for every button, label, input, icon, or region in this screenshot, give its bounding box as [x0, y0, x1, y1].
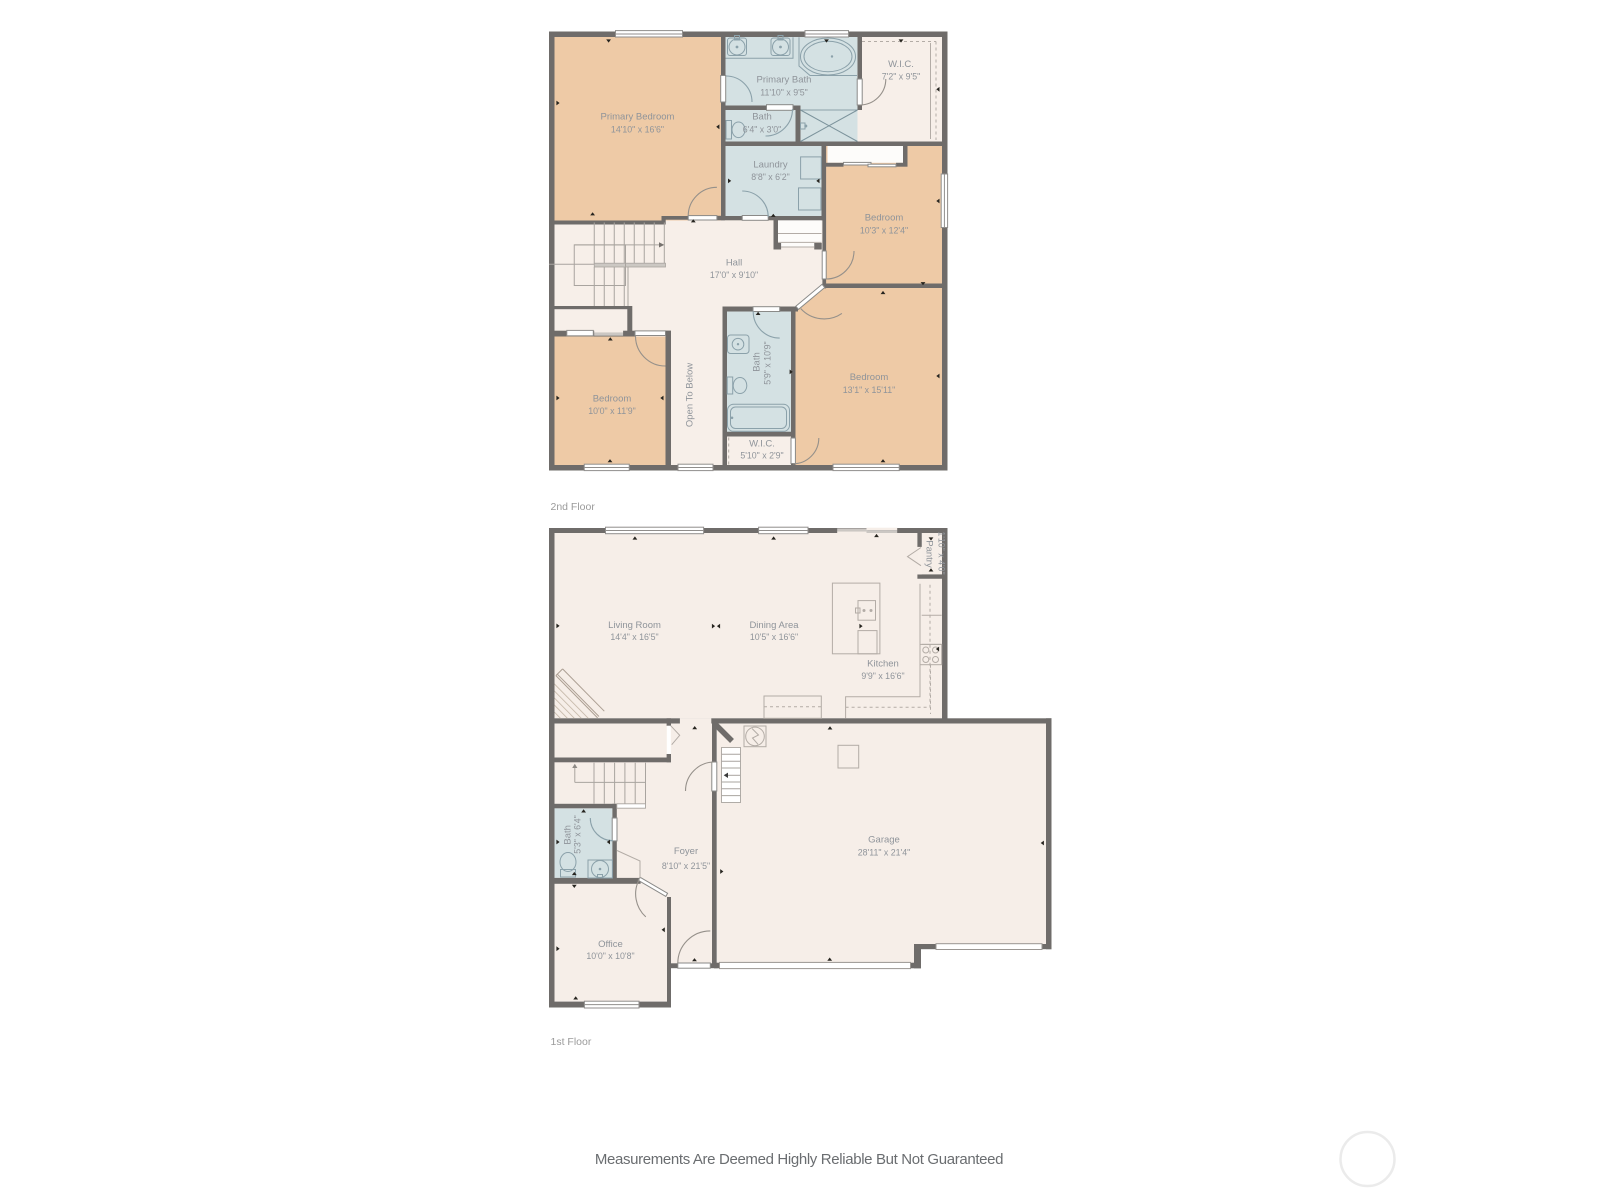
svg-text:Primary Bedroom: Primary Bedroom	[601, 112, 675, 123]
svg-text:Pantry: Pantry	[924, 540, 935, 568]
svg-text:Bedroom: Bedroom	[593, 394, 632, 405]
svg-text:Bath: Bath	[752, 352, 763, 372]
svg-text:8'8" x 6'2": 8'8" x 6'2"	[751, 172, 789, 182]
svg-text:1'10" x 4'0": 1'10" x 4'0"	[937, 531, 947, 574]
svg-text:Dining Area: Dining Area	[749, 620, 799, 631]
svg-text:Laundry: Laundry	[753, 160, 788, 171]
svg-text:Office: Office	[598, 939, 623, 950]
svg-text:W.I.C.: W.I.C.	[749, 439, 775, 450]
svg-text:14'10" x 16'6": 14'10" x 16'6"	[611, 124, 664, 134]
svg-text:6'4" x 3'0": 6'4" x 3'0"	[743, 125, 781, 135]
svg-text:Hall: Hall	[726, 258, 742, 269]
svg-text:Measurements Are Deemed Highly: Measurements Are Deemed Highly Reliable …	[595, 1151, 1003, 1168]
svg-text:10'0" x 11'9": 10'0" x 11'9"	[588, 406, 636, 416]
svg-text:10'0" x 10'8": 10'0" x 10'8"	[586, 951, 634, 961]
svg-text:11'10" x 9'5": 11'10" x 9'5"	[760, 87, 808, 97]
svg-text:Garage: Garage	[868, 835, 900, 846]
svg-text:7'2" x 9'5": 7'2" x 9'5"	[882, 72, 920, 82]
svg-text:Kitchen: Kitchen	[867, 659, 899, 670]
svg-text:17'0" x 9'10": 17'0" x 9'10"	[710, 270, 758, 280]
svg-text:14'4" x 16'5": 14'4" x 16'5"	[610, 632, 658, 642]
svg-text:5'9" x 10'9": 5'9" x 10'9"	[763, 341, 773, 384]
svg-text:Primary Bath: Primary Bath	[757, 75, 812, 86]
svg-text:W.I.C.: W.I.C.	[888, 59, 914, 70]
svg-text:5'3" x 6'4": 5'3" x 6'4"	[573, 815, 583, 853]
svg-text:Foyer: Foyer	[674, 846, 698, 857]
svg-text:8'10" x 21'5": 8'10" x 21'5"	[662, 861, 710, 871]
svg-text:28'11" x 21'4": 28'11" x 21'4"	[858, 847, 911, 857]
svg-text:13'1" x 15'11": 13'1" x 15'11"	[843, 385, 896, 395]
svg-text:Bedroom: Bedroom	[865, 213, 904, 224]
svg-text:Bath: Bath	[752, 112, 772, 123]
svg-text:Open To Below: Open To Below	[685, 363, 696, 427]
svg-text:10'3" x 12'4": 10'3" x 12'4"	[860, 225, 908, 235]
svg-text:1st Floor: 1st Floor	[551, 1036, 592, 1048]
svg-text:2nd Floor: 2nd Floor	[551, 501, 596, 513]
svg-text:Bedroom: Bedroom	[850, 372, 889, 383]
svg-text:9'9" x 16'6": 9'9" x 16'6"	[861, 671, 904, 681]
svg-text:10'5" x 16'6": 10'5" x 16'6"	[750, 632, 798, 642]
svg-text:Living Room: Living Room	[608, 620, 661, 631]
svg-text:5'10" x 2'9": 5'10" x 2'9"	[740, 451, 783, 461]
